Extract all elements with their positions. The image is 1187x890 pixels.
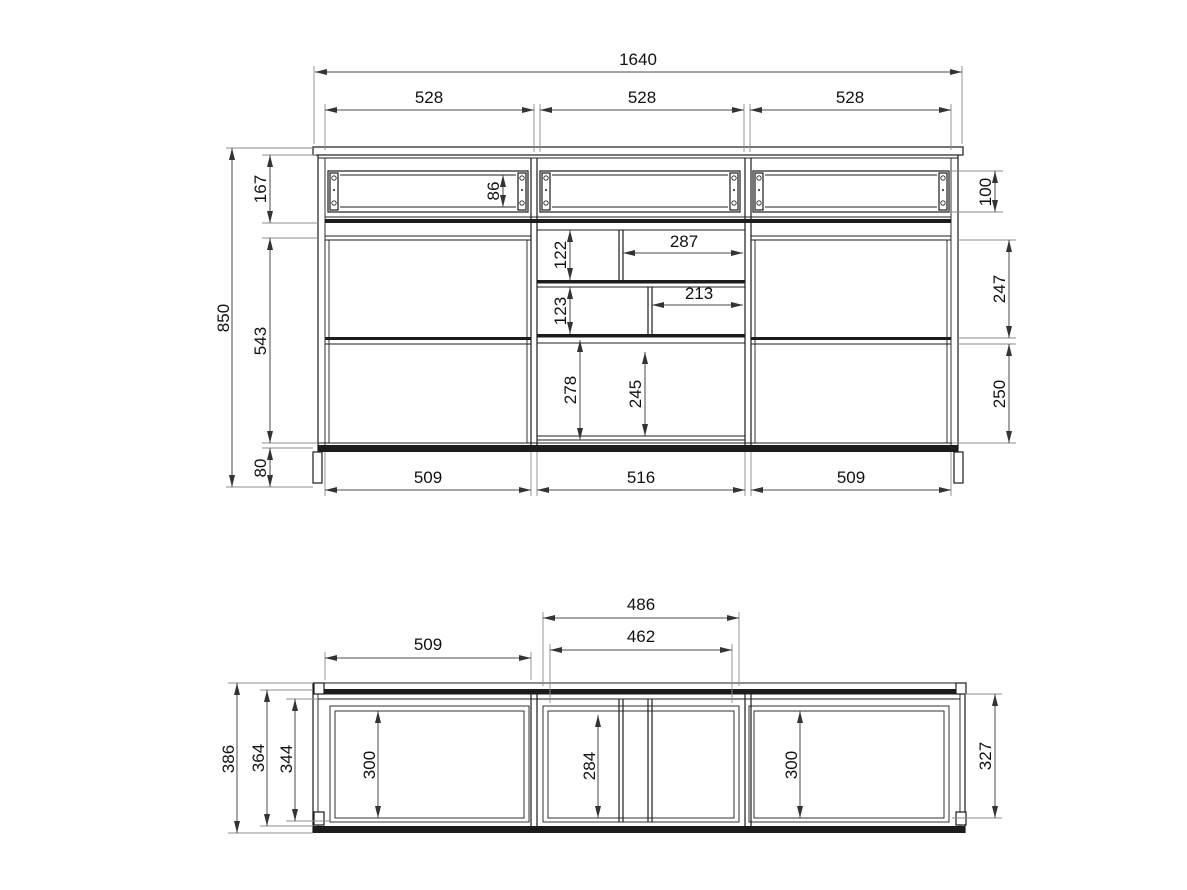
dim-open-mid: 245 <box>626 380 645 408</box>
dim-shelf-upper-height: 122 <box>551 241 570 269</box>
dim-shelf-lower-width: 213 <box>685 284 713 303</box>
dim-plan-depth-inner: 344 <box>277 745 296 773</box>
corner-block <box>956 683 966 694</box>
dim-plan-left-width: 509 <box>414 635 442 654</box>
technical-drawing: 1640 528 528 528 850 167 543 80 86 100 2… <box>0 0 1187 890</box>
dim-open-left: 278 <box>561 376 580 404</box>
dim-front-body-zone: 543 <box>251 327 270 355</box>
dim-front-total-width: 1640 <box>619 50 657 69</box>
drawer-front-middle <box>540 171 740 212</box>
plan-middle-opening <box>543 699 739 822</box>
dim-opening-1: 509 <box>414 468 442 487</box>
plan-extension-lines <box>228 612 1002 833</box>
dim-shelf-lower-height: 123 <box>551 297 570 325</box>
plan-outline <box>313 683 966 833</box>
dim-plan-left-depth: 300 <box>360 751 379 779</box>
dim-front-plinth: 80 <box>251 459 270 478</box>
dim-plan-depth-body: 364 <box>249 744 268 772</box>
dim-plan-mid-depth: 284 <box>580 752 599 780</box>
drawing-sheet: 1640 528 528 528 850 167 543 80 86 100 2… <box>0 0 1187 890</box>
dim-plan-depth-total: 386 <box>219 745 238 773</box>
corner-block <box>314 812 324 825</box>
dim-plan-mid-inner: 462 <box>627 627 655 646</box>
front-right-leg <box>954 452 963 483</box>
cabinet-outline <box>313 147 963 483</box>
dim-front-total-height: 850 <box>214 304 233 332</box>
dim-front-section-1: 528 <box>415 88 443 107</box>
dim-front-section-3: 528 <box>836 88 864 107</box>
dim-plan-right-side-depth: 327 <box>976 742 995 770</box>
corner-block <box>314 683 324 694</box>
drawer-front-right <box>753 171 949 212</box>
dim-drawer-panel: 86 <box>484 182 503 201</box>
left-door-section <box>325 236 531 443</box>
plan-view: 509 486 462 386 364 344 300 284 300 327 <box>219 595 1002 833</box>
corner-block <box>956 812 966 825</box>
plan-right-opening <box>749 706 949 822</box>
front-view-elevation: 1640 528 528 528 850 167 543 80 86 100 2… <box>214 50 1016 496</box>
dim-lower-door: 250 <box>990 380 1009 408</box>
plan-dimension-lines <box>237 618 995 833</box>
right-door-section <box>751 236 951 443</box>
dim-front-section-2: 528 <box>628 88 656 107</box>
dim-shelf-upper-width: 287 <box>670 232 698 251</box>
dim-upper-door: 247 <box>990 275 1009 303</box>
dim-drawer-front: 100 <box>976 178 995 206</box>
dim-plan-right-depth: 300 <box>782 751 801 779</box>
front-left-leg <box>313 452 322 483</box>
dim-opening-2: 516 <box>627 468 655 487</box>
dim-plan-mid-outer: 486 <box>627 595 655 614</box>
dim-opening-3: 509 <box>837 468 865 487</box>
dim-front-drawer-zone: 167 <box>251 175 270 203</box>
